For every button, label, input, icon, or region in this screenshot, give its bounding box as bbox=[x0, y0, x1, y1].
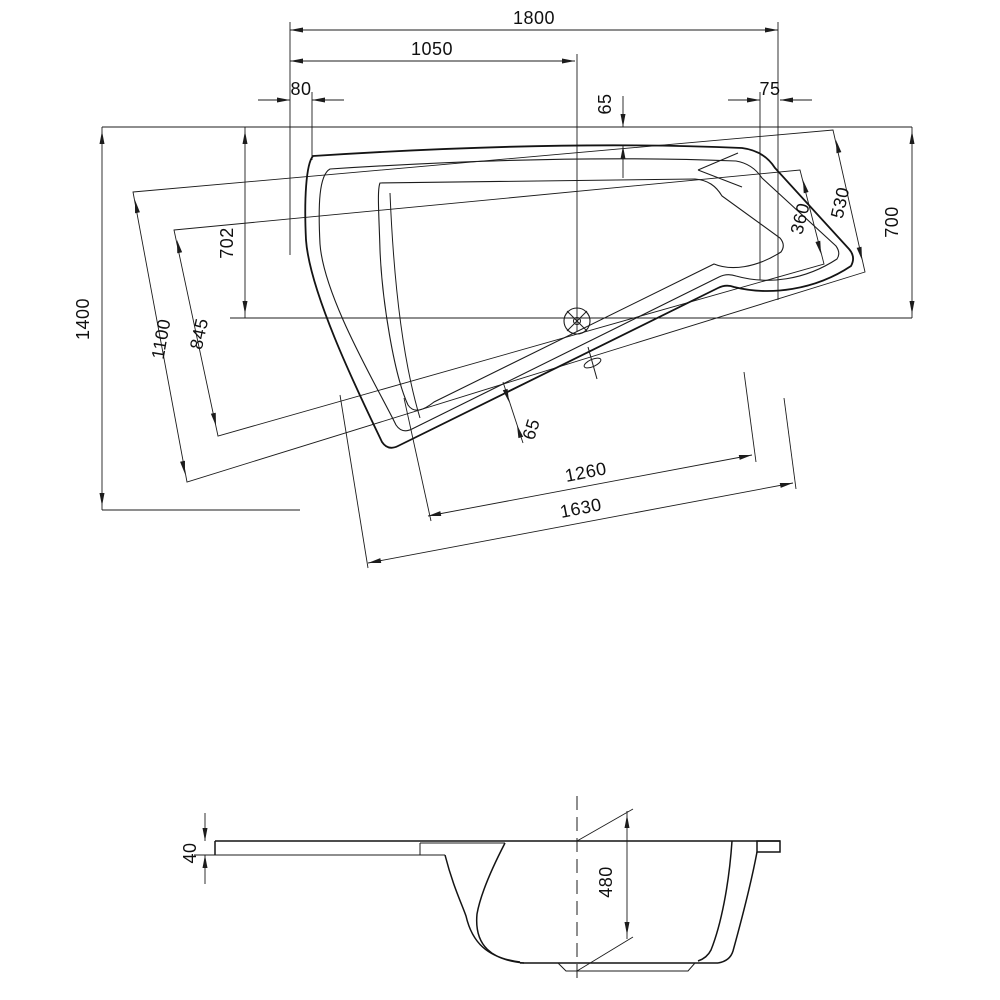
arrowhead bbox=[801, 179, 809, 193]
side-wall-inner bbox=[445, 855, 520, 962]
tub-plan bbox=[305, 145, 853, 447]
arrowhead bbox=[100, 131, 105, 144]
arrowhead bbox=[368, 558, 382, 565]
drain-symbol bbox=[564, 308, 602, 379]
arrowhead bbox=[910, 301, 915, 314]
dim-label-480: 480 bbox=[596, 866, 616, 898]
arrowhead bbox=[203, 828, 208, 841]
dim-label-75: 75 bbox=[759, 79, 780, 99]
dim-label-1400: 1400 bbox=[73, 298, 93, 340]
side-apron-notch bbox=[420, 843, 505, 855]
arrowhead bbox=[133, 200, 140, 214]
basin-outline bbox=[378, 179, 783, 410]
dim-label-700: 700 bbox=[882, 206, 902, 238]
arrowhead bbox=[910, 131, 915, 144]
arrowhead bbox=[290, 59, 303, 64]
arrowhead bbox=[277, 98, 290, 103]
dim-label-65-top: 65 bbox=[595, 93, 615, 114]
arrowhead bbox=[203, 855, 208, 868]
ext-line-1260-left bbox=[404, 398, 431, 521]
dim-line-1630 bbox=[368, 483, 793, 563]
headrest-crease-lower bbox=[698, 170, 742, 187]
flag-line-bottom bbox=[577, 937, 633, 971]
dim-label-530: 530 bbox=[827, 185, 854, 220]
arrowhead bbox=[243, 301, 248, 314]
dimension-arrowheads bbox=[100, 28, 915, 936]
ext-line-1630-left bbox=[340, 395, 368, 568]
ext-line-1260-right bbox=[744, 372, 756, 462]
arrowhead bbox=[747, 98, 760, 103]
arrowhead bbox=[625, 815, 630, 828]
arrowhead bbox=[175, 239, 183, 253]
arrowhead bbox=[621, 114, 626, 127]
side-right-wall-inner bbox=[698, 841, 732, 961]
arrowhead bbox=[621, 146, 626, 159]
dim-label-1260: 1260 bbox=[563, 458, 608, 486]
arrowhead bbox=[211, 413, 219, 427]
arrowhead bbox=[180, 461, 187, 475]
arrowhead bbox=[312, 98, 325, 103]
dim-label-845: 845 bbox=[186, 316, 212, 351]
dim-label-1050: 1050 bbox=[411, 39, 453, 59]
overflow-tick bbox=[588, 347, 597, 379]
arrowhead bbox=[815, 241, 823, 255]
arrowhead bbox=[243, 131, 248, 144]
dim-label-360: 360 bbox=[787, 201, 814, 236]
dim-label-1800: 1800 bbox=[513, 8, 555, 28]
basin-foot-wall-line bbox=[390, 193, 420, 418]
arrowhead bbox=[780, 98, 793, 103]
dim-label-1630: 1630 bbox=[558, 494, 603, 522]
ext-line-1630-right bbox=[784, 398, 796, 489]
arrowhead bbox=[562, 59, 575, 64]
arrowhead bbox=[739, 453, 753, 460]
dim-label-65-mid: 65 bbox=[519, 416, 544, 442]
dim-label-80: 80 bbox=[290, 79, 311, 99]
side-dimension-labels: 40 480 bbox=[180, 842, 616, 897]
arrowhead bbox=[857, 247, 865, 261]
side-wall-outer bbox=[477, 843, 524, 963]
dim-label-1100: 1100 bbox=[148, 317, 175, 361]
tub-outer-rim bbox=[305, 145, 853, 447]
arrowhead bbox=[765, 28, 778, 33]
arrowhead bbox=[290, 28, 303, 33]
headrest-crease-upper bbox=[698, 153, 738, 170]
arrowhead bbox=[100, 493, 105, 506]
bathtub-technical-drawing: 1800 1050 80 75 65 702 1400 700 1100 845… bbox=[0, 0, 1000, 1000]
side-view: 40 480 bbox=[180, 796, 780, 980]
arrowhead bbox=[625, 922, 630, 935]
side-rim-lip bbox=[757, 841, 780, 852]
dim-label-702: 702 bbox=[217, 227, 237, 259]
flag-line-top bbox=[577, 809, 633, 841]
dim-label-40: 40 bbox=[180, 842, 200, 863]
technical-drawing-page: 1800 1050 80 75 65 702 1400 700 1100 845… bbox=[0, 0, 1000, 1000]
arrowhead bbox=[834, 139, 842, 153]
arrowhead bbox=[780, 481, 794, 488]
